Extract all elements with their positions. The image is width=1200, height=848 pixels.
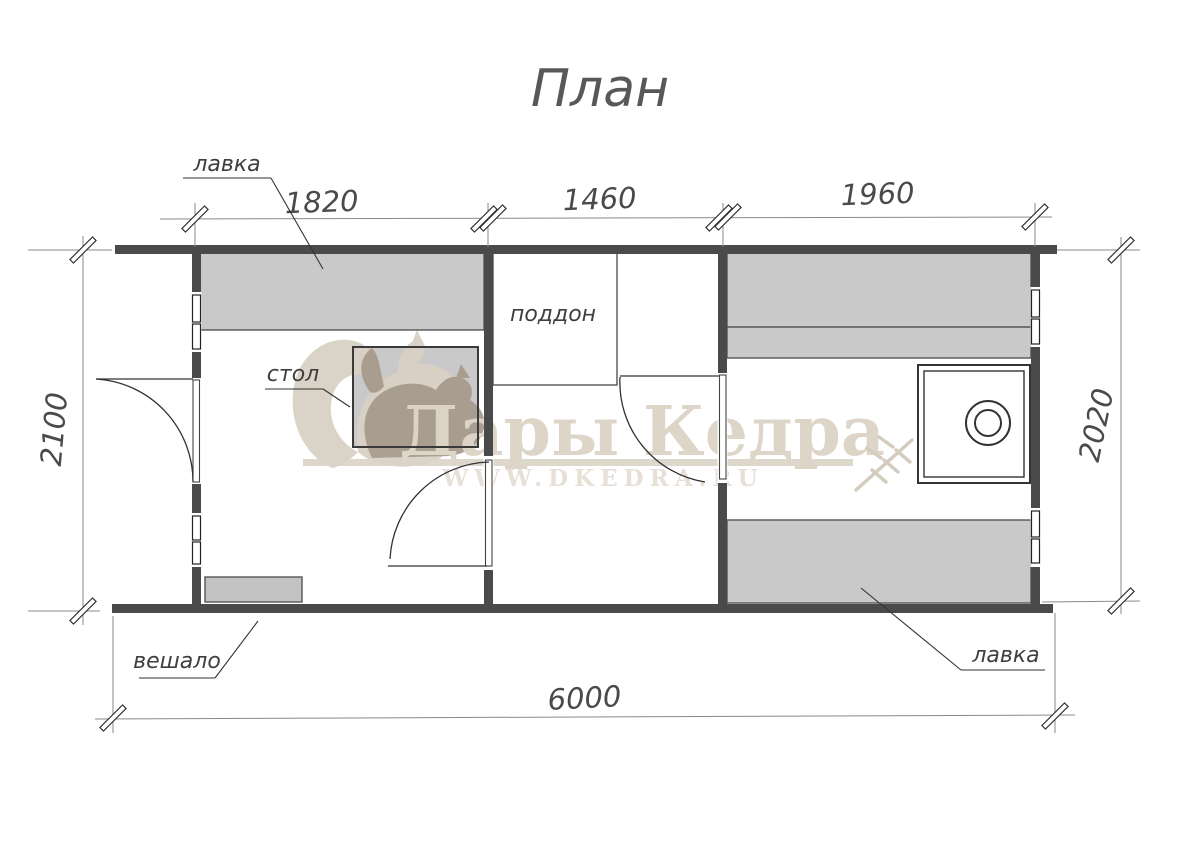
floor-plan-page: План Дары Кедра WWW.DKEDRA.RU <box>0 0 1200 848</box>
vent-window-right-lower <box>1032 511 1040 563</box>
drawing-title: План <box>531 59 669 119</box>
bench-right-top-fill <box>727 253 1031 358</box>
stove-burner-inner <box>975 410 1001 436</box>
label-hanger: вешало <box>133 649 221 674</box>
vent-window-left-lower <box>193 516 201 564</box>
label-tray: поддон <box>510 302 596 327</box>
vent-window-right-upper <box>1032 290 1040 344</box>
bench-top-left-fill <box>200 253 484 330</box>
vent-window-left-upper <box>193 295 201 349</box>
dim-bottom-total: 6000 <box>547 679 622 717</box>
wall-top <box>115 245 1057 254</box>
dim-left-height: 2100 <box>34 391 74 467</box>
label-bench-top: лавка <box>192 152 260 177</box>
floor-plan-drawing: План Дары Кедра WWW.DKEDRA.RU <box>0 0 1200 848</box>
wall-bottom <box>112 604 1053 613</box>
dim-right-height: 2020 <box>1072 385 1121 464</box>
label-bench-bottom: лавка <box>971 643 1039 668</box>
hanger-fill <box>205 577 302 602</box>
label-table: стол <box>267 362 319 387</box>
stove <box>918 365 1030 483</box>
dim-top-left: 1820 <box>284 184 359 221</box>
bench-right-bottom-fill <box>727 520 1031 603</box>
dim-top-right: 1960 <box>840 176 915 213</box>
door-left <box>96 379 200 482</box>
watermark-brand-text: Дары Кедра <box>399 392 885 472</box>
dim-top-middle: 1460 <box>562 181 637 218</box>
